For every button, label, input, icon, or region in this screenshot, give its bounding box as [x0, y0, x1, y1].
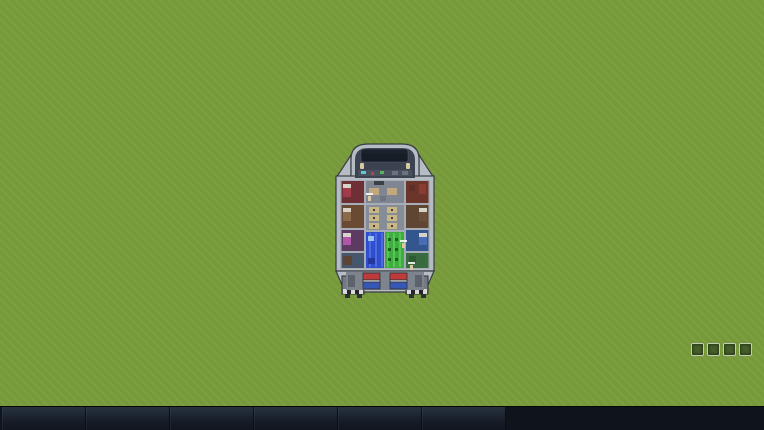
hotkey-row: [691, 343, 752, 356]
menu-build-object[interactable]: [338, 407, 422, 430]
game-window: [0, 0, 764, 430]
bottom-toolbar: [0, 406, 764, 430]
ship-rooms: [342, 181, 429, 270]
menu-power[interactable]: [86, 407, 170, 430]
game-map[interactable]: [0, 0, 764, 430]
menu-pipes[interactable]: [170, 407, 254, 430]
hotkey-button-4[interactable]: [739, 343, 752, 356]
ship-warning-tooltip: [361, 149, 408, 162]
menu-hull[interactable]: [2, 407, 86, 430]
menu-floor-plan[interactable]: [254, 407, 338, 430]
menu-tasks[interactable]: [422, 407, 506, 430]
status-overlay: [691, 341, 761, 356]
hotkey-button-2[interactable]: [707, 343, 720, 356]
hotkey-button-1[interactable]: [691, 343, 704, 356]
hotkey-button-3[interactable]: [723, 343, 736, 356]
ship-engine-room: [346, 272, 424, 290]
ship[interactable]: [336, 144, 434, 298]
